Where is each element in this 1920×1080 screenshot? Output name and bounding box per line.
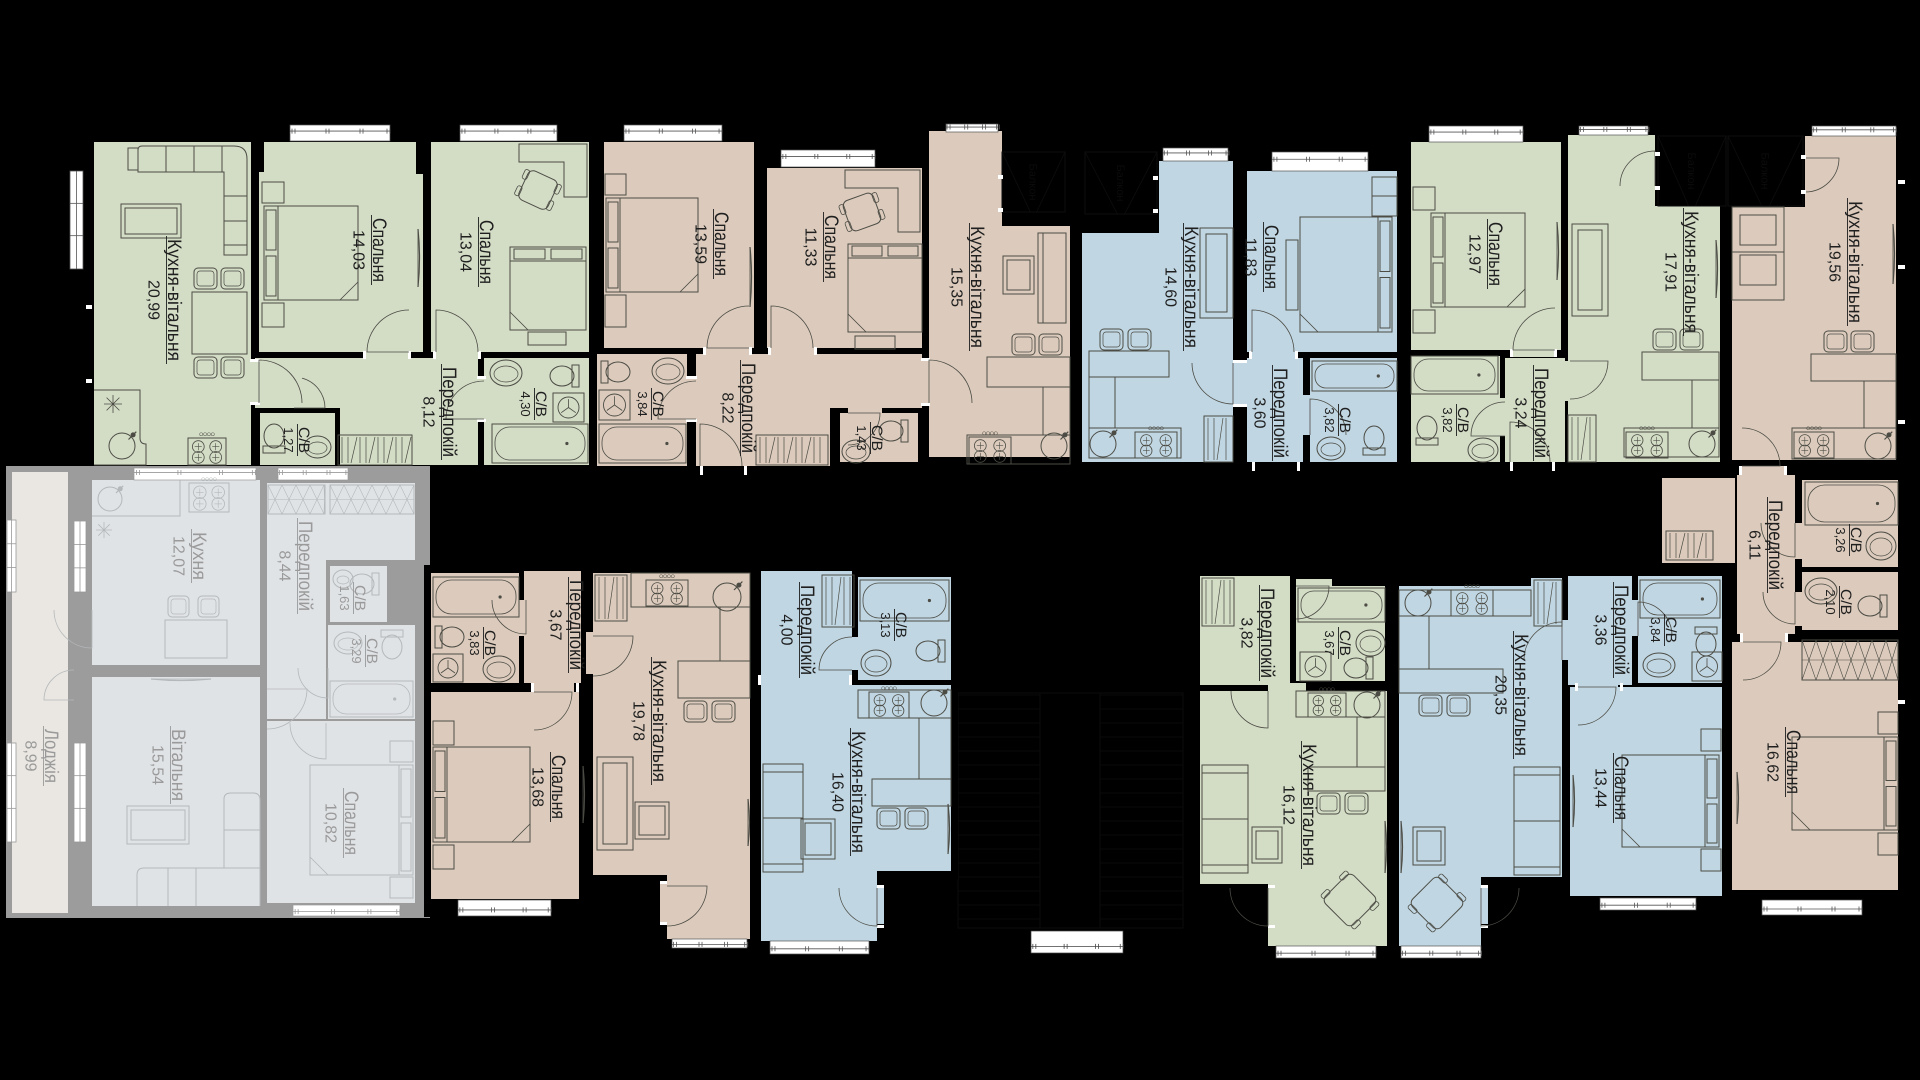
- svg-text:OOOO: OOOO: [199, 432, 215, 438]
- svg-text:OOOO: OOOO: [1464, 584, 1480, 590]
- svg-text:С/В2,10: С/В2,10: [1823, 589, 1854, 615]
- svg-text:С/В3,82: С/В3,82: [1440, 407, 1471, 433]
- svg-text:С/В1,63: С/В1,63: [337, 585, 368, 611]
- svg-text:OOOO: OOOO: [201, 477, 217, 483]
- svg-text:С/В3,29: С/В3,29: [349, 638, 380, 664]
- svg-text:С/В3,83: С/В3,83: [467, 630, 498, 656]
- svg-text:С/В3,13: С/В3,13: [878, 612, 909, 638]
- svg-text:OOOO: OOOO: [982, 431, 998, 437]
- svg-text:OOOO: OOOO: [1319, 687, 1335, 693]
- svg-text:OOOO: OOOO: [1148, 426, 1164, 432]
- svg-text:OOOO: OOOO: [1806, 426, 1822, 432]
- svg-text:С/В3,84: С/В3,84: [635, 391, 666, 417]
- svg-text:С/В4,30: С/В4,30: [518, 391, 549, 417]
- svg-text:OOOO: OOOO: [881, 686, 897, 692]
- svg-text:С/В3,67: С/В3,67: [1322, 630, 1353, 656]
- svg-text:С/В3,84: С/В3,84: [1648, 617, 1679, 643]
- svg-text:Балкон: Балкон: [1759, 153, 1771, 190]
- svg-text:Кухня12,07: Кухня12,07: [170, 532, 211, 580]
- svg-text:С/В1,27: С/В1,27: [281, 427, 312, 453]
- svg-text:Балкон: Балкон: [1114, 165, 1126, 202]
- svg-text:OOOO: OOOO: [659, 574, 675, 580]
- svg-text:С/В3,26: С/В3,26: [1833, 527, 1864, 553]
- svg-text:Балкон: Балкон: [1685, 153, 1697, 190]
- svg-text:С/В1,43: С/В1,43: [854, 425, 885, 451]
- svg-text:OOOO: OOOO: [1639, 426, 1655, 432]
- svg-text:С/В3,82: С/В3,82: [1322, 407, 1353, 433]
- svg-text:Балкон: Балкон: [1027, 164, 1039, 201]
